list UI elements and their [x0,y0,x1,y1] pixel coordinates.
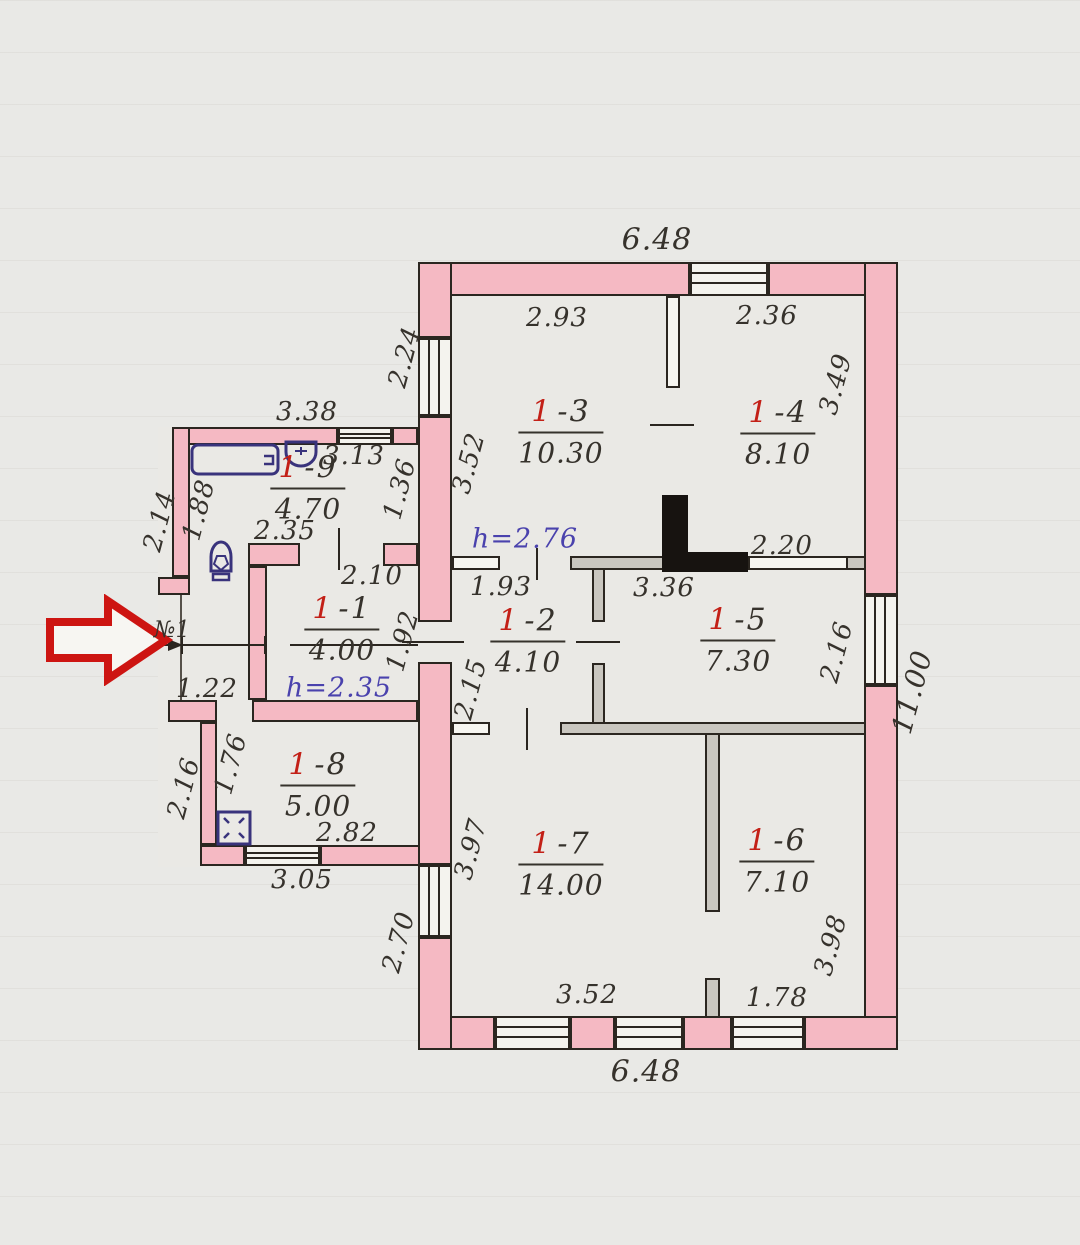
partition-r2-r5-upper [592,568,605,622]
wall-r9-left-foot [158,577,190,595]
wall-bottom-seg4 [804,1016,898,1050]
dim-r9-inner: 3.13 [323,441,385,471]
partition-r7-r6-upper [705,733,720,912]
dim-r1-width: 2.10 [341,561,403,591]
wall-right-upper [864,262,898,595]
entry-number-label: №1 [154,617,190,643]
partition-a-mid [570,556,666,570]
wall-r1-left [248,566,267,700]
dim-top-width: 6.48 [622,223,693,258]
partition-r2-r5-lower [592,663,605,724]
chimney-vertical [662,495,688,572]
dim-r6-width: 1.78 [746,983,808,1013]
entry-dim-tick-right [264,636,266,654]
door-tick-r2-r5 [576,641,620,643]
room-label-1-4: 1-4 8.10 [740,396,815,471]
window-left-lower [418,865,452,937]
room-label-1-7: 1-7 14.00 [518,827,603,902]
dim-r9-top: 3.38 [276,397,338,427]
door-tick-r2-r7 [526,708,528,750]
window-top [690,262,768,296]
room-label-1-8: 1-8 5.00 [280,748,355,823]
wall-bottom-seg3 [683,1016,732,1050]
dim-bottom-width: 6.48 [611,1055,682,1090]
window-left-upper [418,338,452,416]
wall-left-seg4 [418,937,452,1050]
wall-top-left-segment [418,262,690,296]
partition-r3-r4 [666,296,680,388]
partition-b-sill [452,722,490,735]
wall-left-seg3 [418,662,452,865]
window-bottom-right [732,1016,804,1050]
window-r8 [245,845,320,866]
room-label-1-3: 1-3 10.30 [518,395,603,470]
partition-r7-r6-stub [705,978,720,1018]
dim-r5-width: 3.36 [633,573,695,603]
door-tick-r3-r4 [650,424,694,426]
wall-bottom-seg2 [570,1016,615,1050]
dim-r8-width-inner: 2.82 [316,818,378,848]
window-bottom-left [495,1016,570,1050]
dim-r8-width-outer: 3.05 [271,865,333,895]
bathtub-icon [190,443,280,476]
window-right [864,595,898,685]
chimney-horizontal [686,552,748,572]
dim-r9-bottom: 2.35 [254,516,316,546]
dim-r7-width: 3.52 [556,980,618,1010]
wall-r9-bottom-left [248,543,300,566]
dim-entry-width: 1.22 [176,674,238,704]
height-note-upper: h=2.76 [472,524,578,555]
stove-icon [216,810,252,846]
dim-r5-wall: 2.20 [751,531,813,561]
partition-a-sill [452,556,500,570]
wall-r8-bottom-right [320,845,420,866]
window-bottom-middle [615,1016,683,1050]
dim-r2-width: 1.93 [470,572,532,602]
room-label-1-6: 1-6 7.10 [739,824,814,899]
room-label-1-1: 1-1 4.00 [304,592,379,667]
door-tick-r9-r1 [338,528,340,570]
dim-r3-width: 2.93 [526,303,588,333]
height-note-lower: h=2.35 [286,673,392,704]
wall-left-seg1 [418,262,452,338]
dim-r4-width: 2.36 [736,301,798,331]
partition-a-right [846,556,866,570]
room-label-1-2: 1-2 4.10 [490,604,565,679]
wall-r8-bottom-left [200,845,245,866]
dim-bottom-left-height: 2.70 [377,908,422,976]
wall-right-lower [864,685,898,1050]
floor-plan-page: { "rooms": { "r1": {"num": "1", "sep": "… [0,0,1080,1245]
wall-r9-top-right [392,427,418,445]
room-label-1-5: 1-5 7.30 [700,603,775,678]
wall-left-seg2 [418,416,452,622]
toilet-icon [205,537,237,583]
